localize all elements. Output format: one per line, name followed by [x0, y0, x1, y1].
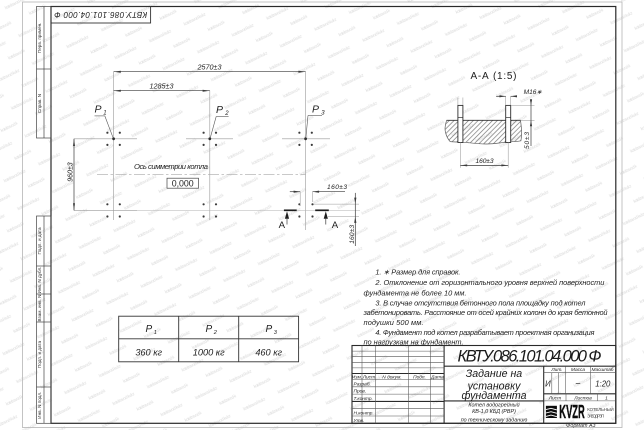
svg-text:Ось симметрии котла: Ось симметрии котла [134, 162, 208, 171]
svg-text:P: P [95, 103, 102, 115]
svg-text:Справ. N: Справ. N [37, 94, 42, 113]
svg-text:КВ-1,0 КБД (РВР): КВ-1,0 КБД (РВР) [472, 409, 516, 415]
svg-text:КВТУ.086.101.04.000 Ф: КВТУ.086.101.04.000 Ф [54, 10, 148, 19]
svg-text:Т.контр.: Т.контр. [354, 396, 373, 402]
svg-text:КОТЕЛЬНЫЙ: КОТЕЛЬНЫЙ [587, 407, 614, 412]
svg-text:P: P [146, 324, 153, 335]
svg-text:Подп.: Подп. [413, 374, 426, 380]
svg-text:P: P [266, 324, 273, 335]
svg-text:Лист: Лист [548, 396, 561, 402]
svg-text:160±3: 160±3 [476, 158, 494, 165]
svg-text:А: А [332, 220, 339, 231]
svg-text:Формат А3: Формат А3 [566, 423, 596, 429]
svg-text:ЗАВОД РЭП: ЗАВОД РЭП [587, 414, 604, 419]
svg-text:КВТУ.086.101.04.000 Ф: КВТУ.086.101.04.000 Ф [458, 348, 602, 366]
svg-text:0,000: 0,000 [172, 179, 194, 189]
svg-text:Лист: Лист [362, 374, 375, 380]
svg-text:50±3: 50±3 [524, 132, 531, 149]
svg-text:460 кг: 460 кг [255, 347, 282, 357]
svg-text:А: А [279, 220, 286, 231]
svg-text:3. В случае отсутствия бетонно: 3. В случае отсутствия бетонного пола пл… [375, 298, 586, 307]
svg-text:Изм.: Изм. [352, 374, 362, 380]
svg-text:Н.контр.: Н.контр. [354, 411, 374, 417]
svg-text:фундамента: фундамента [461, 390, 526, 402]
svg-text:Дата: Дата [430, 374, 444, 380]
svg-text:Подп. и дата: Подп. и дата [37, 341, 42, 369]
svg-text:P: P [312, 103, 319, 115]
svg-text:1: 1 [154, 330, 157, 336]
svg-text:4. Фундамент под котел разраба: 4. Фундамент под котел разрабатывает про… [375, 328, 594, 337]
svg-text:по техническому заданию: по техническому заданию [461, 417, 528, 423]
svg-text:1: 1 [605, 396, 608, 402]
svg-text:Задание на: Задание на [466, 368, 523, 380]
svg-text:А-А (1:5): А-А (1:5) [471, 71, 517, 82]
svg-text:KVZR: KVZR [559, 402, 585, 422]
svg-text:Котел водогрейный: Котел водогрейный [468, 401, 519, 408]
svg-text:1. ∗ Размер для справок.: 1. ∗ Размер для справок. [375, 268, 460, 277]
svg-text:P: P [206, 324, 213, 335]
svg-text:2: 2 [224, 111, 229, 117]
svg-text:2. Отклонение от горизонтально: 2. Отклонение от горизонтального уровня … [374, 278, 604, 287]
svg-text:Масса: Масса [571, 367, 586, 373]
svg-text:Пров.: Пров. [354, 389, 367, 395]
svg-text:160±3: 160±3 [349, 224, 356, 243]
svg-text:Масштаб: Масштаб [592, 367, 614, 373]
svg-text:160±3: 160±3 [327, 184, 347, 191]
svg-text:N докум.: N докум. [382, 374, 401, 380]
svg-text:И: И [545, 380, 551, 389]
svg-text:Разраб.: Разраб. [354, 381, 371, 387]
svg-text:1000 кг: 1000 кг [193, 347, 225, 357]
svg-text:Взам. инв. N: Взам. инв. N [37, 295, 42, 322]
svg-text:1:20: 1:20 [595, 379, 611, 388]
svg-text:360 кг: 360 кг [135, 347, 162, 357]
svg-text:2570±3: 2570±3 [197, 63, 222, 72]
svg-text:Инв. N подл.: Инв. N подл. [37, 392, 42, 419]
svg-text:Перв. примен.: Перв. примен. [37, 23, 42, 54]
svg-text:Инв. N дубл.: Инв. N дубл. [37, 267, 42, 294]
svg-text:Лит.: Лит. [550, 367, 562, 373]
svg-text:фундамента не более 10 мм.: фундамента не более 10 мм. [364, 288, 467, 297]
svg-text:Утв.: Утв. [354, 418, 365, 424]
svg-text:1285±3: 1285±3 [150, 82, 174, 91]
svg-text:P: P [216, 104, 223, 116]
svg-text:960±3: 960±3 [68, 162, 75, 182]
svg-text:Подп. и дата: Подп. и дата [37, 227, 42, 255]
svg-text:–: – [575, 379, 581, 388]
svg-text:забетонировать. Расстояние от: забетонировать. Расстояние от осей крайн… [363, 308, 608, 317]
svg-text:подушки 500 мм.: подушки 500 мм. [364, 318, 424, 327]
svg-text:Листов: Листов [573, 396, 592, 402]
svg-text:М16∗: М16∗ [524, 89, 543, 96]
